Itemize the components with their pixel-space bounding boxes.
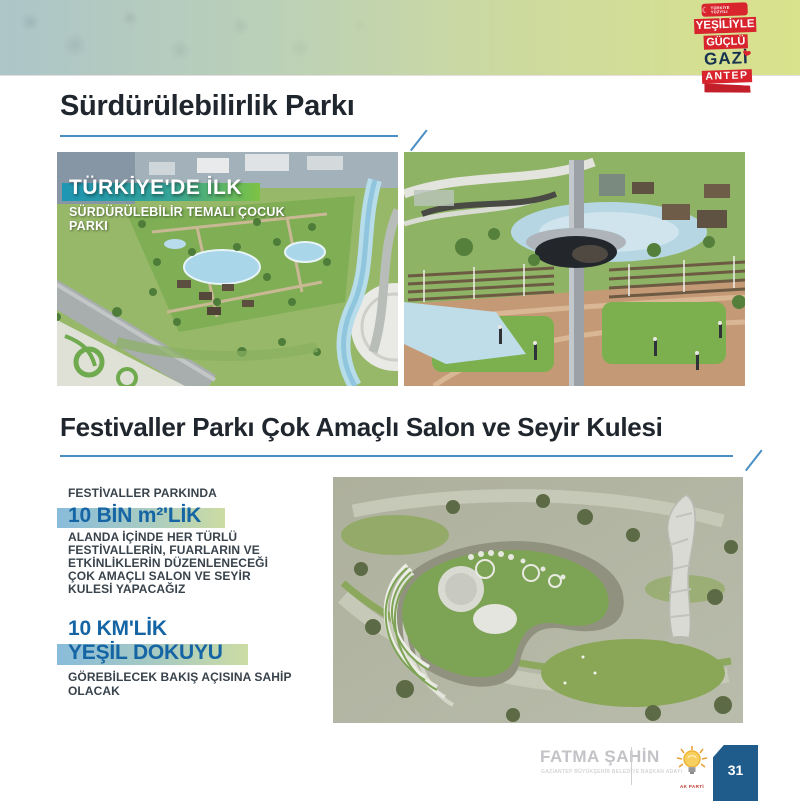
ak-parti-logo: AK PARTİ [674,745,710,789]
body-line: ETKİNLİKLERİN DÜZENLENECEĞİ [68,556,268,570]
turkiye-yuzyili-logo: ☾ TÜRKİYE YÜZYILI [701,2,747,17]
lightbulb-icon [674,745,710,779]
section1-title-underline [60,135,398,137]
underline-slash [410,130,428,152]
first-in-turkey-headline: TÜRKİYE'DE İLK [69,176,242,200]
children-park-aerial-image: TÜRKİYE'DE İLK SÜRDÜRÜLEBİLİR TEMALI ÇOC… [57,152,398,386]
body-line: ALANDA İÇİNDE HER TÜRLÜ [68,530,237,544]
hall-illustration [333,477,743,723]
area-highlight: 10 BİN m²'LİK [68,504,201,528]
city-badge: ☾ TÜRKİYE YÜZYILI YEŞİLİYLE GÜÇLÜ GAZİ ❤… [691,2,760,96]
badge-city-antep: ANTEP [702,69,752,84]
park-subline-1: SÜRDÜRÜLEBİLİR TEMALI ÇOCUK [69,205,285,219]
turkiye-yuzyili-label: TÜRKİYE YÜZYILI [711,5,748,14]
green-length-highlight: 10 KM'LİK [68,617,167,641]
multipurpose-hall-image [333,477,743,723]
observation-tower-park-image [404,152,745,386]
candidate-subtitle: GAZİANTEP BÜYÜKŞEHİR BELEDİYE BAŞKAN ADA… [541,769,682,775]
candidate-name: FATMA ŞAHİN [540,747,660,767]
section2-title: Festivaller Parkı Çok Amaçlı Salon ve Se… [60,412,663,443]
section1-title: Sürdürülebilirlik Parkı [60,90,354,123]
festival-park-intro: FESTİVALLER PARKINDA [68,486,217,500]
body-line: KULESİ YAPACAĞIZ [68,582,185,596]
party-label: AK PARTİ [674,784,710,789]
crowd-texture [0,0,800,75]
body-line: ÇOK AMAÇLI SALON VE SEYİR [68,569,251,583]
slide-page: ☾ TÜRKİYE YÜZYILI YEŞİLİYLE GÜÇLÜ GAZİ ❤… [0,0,800,801]
badge-ribbon-tail [704,83,750,96]
tower-park-illustration [404,152,745,386]
body-line: GÖREBİLECEK BAKIŞ AÇISINA SAHİP [68,670,292,684]
footer-divider [631,747,632,785]
badge-city-gazi: GAZİ ❤ [693,49,760,69]
park-subline-2: PARKI [69,219,108,233]
green-texture-highlight: YEŞİL DOKUYU [68,641,223,665]
page-number-badge: 31 [713,745,758,801]
body-line: FESTİVALLERİN, FUARLARIN VE [68,543,260,557]
header-banner [0,0,800,76]
badge-line-guclu: GÜÇLÜ [704,34,748,50]
badge-line-yesiliyle: YEŞİLİYLE [694,17,756,34]
section2-title-underline [60,455,733,457]
underline-slash [745,450,763,472]
crescent-icon: ☾ [702,6,709,14]
body-line: OLACAK [68,684,120,698]
